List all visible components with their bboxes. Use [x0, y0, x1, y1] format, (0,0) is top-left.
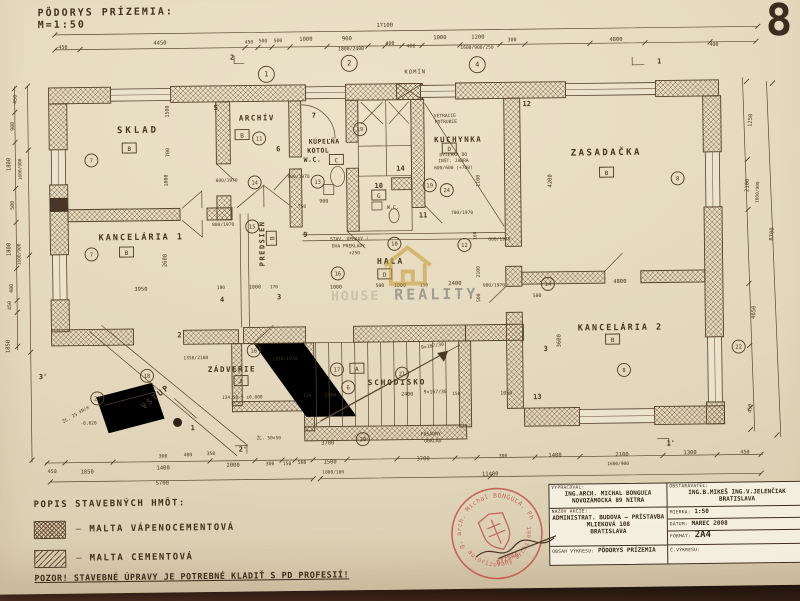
plan-text: 450 — [245, 39, 254, 45]
position-mark-8: 8 — [671, 172, 684, 185]
stamp-arc-bottom-text: autorizovaný architekt — [465, 524, 543, 580]
room-type-box-B: B — [122, 143, 136, 153]
room-type-box-G: G — [372, 190, 386, 200]
plan-text: 100 — [217, 285, 225, 291]
plan-text: B — [611, 337, 615, 344]
wall-mark: 5 — [214, 104, 218, 112]
legend-item-label: MALTA VÁPENOCEMENTOVÁ — [89, 523, 234, 535]
plan-text: 3700 — [416, 456, 429, 462]
plan-text: 1050 — [500, 390, 512, 396]
plan-text: 7 — [90, 252, 93, 258]
warning-note: POZOR! STAVEBNÉ ÚPRAVY JE POTREBNÉ KLADI… — [34, 570, 349, 584]
wall-mark: 11 — [419, 211, 428, 219]
plan-text: 2000 — [226, 463, 239, 469]
plan-text: A — [355, 366, 359, 373]
room-label-k-pe-a: KÚPEĽŇA — [309, 136, 340, 145]
plan-text: 500 — [274, 38, 283, 44]
position-mark-24: 24 — [440, 184, 453, 197]
room-label-zasada-ka: ZASADAČKA — [571, 146, 642, 159]
plan-text: 24 — [443, 188, 450, 194]
plan-text: 300 — [507, 37, 516, 43]
plan-text: 150 — [303, 393, 311, 399]
plan-text: 500 — [376, 283, 385, 289]
plan-text: 1850 — [81, 469, 94, 475]
plan-text: 1350/2100 — [183, 355, 208, 361]
plan-text: 4650 — [751, 306, 758, 319]
plan-text: 1400 — [156, 466, 169, 472]
plan-text: +250 — [349, 250, 360, 256]
plan-text: 800/1970 — [488, 236, 510, 242]
plan-text: 3700 — [321, 441, 334, 447]
plan-text: 1000 — [330, 284, 342, 290]
plan-text: C — [335, 157, 339, 164]
tb-cislo-vykresu: Č.VÝKRESU: — [668, 544, 800, 564]
plan-text: STAV. ÚPRAVY ! — [330, 235, 369, 242]
room-label-kancel-ria-1: KANCELÁRIA 1 — [99, 230, 185, 243]
plan-text: 1000 — [394, 283, 406, 289]
wall-mark: 9 — [303, 231, 307, 239]
plan-text: 16 — [250, 348, 257, 354]
plan-text: 4800 — [609, 37, 622, 43]
plan-text: 450 — [13, 95, 19, 104]
plan-text: 1500 — [165, 105, 171, 117]
plan-text: 8 — [622, 368, 625, 374]
plan-text: 14 — [545, 282, 552, 288]
plan-text: 2100 — [744, 179, 751, 192]
hatch-swatch-diagonal — [34, 550, 66, 568]
room-label-arch-v: ARCHÍV — [239, 113, 275, 122]
plan-text: 2100 — [476, 266, 482, 278]
plan-text: 500 — [259, 38, 268, 44]
plan-text: 1350/1970 — [272, 356, 297, 362]
room-label-kuchynka: KUCHYNKA — [434, 135, 482, 145]
svg-text:autorizovaný architekt: autorizovaný architekt — [465, 524, 543, 580]
materials-legend: POPIS STAVEBNÝCH HMÔT: — MALTA VÁPENOCEM… — [34, 496, 395, 568]
plan-text: 1300 — [683, 450, 696, 456]
plan-text: 23 — [94, 396, 101, 402]
plan-text: 4800 — [613, 279, 626, 285]
position-mark-22: 22 — [732, 340, 745, 353]
plan-text: A — [239, 379, 243, 386]
plan-text: 800/1970 — [212, 222, 234, 228]
room-type-box-B: B — [119, 247, 133, 257]
plan-text: 11400 — [482, 472, 499, 478]
plan-text: 1100 — [476, 175, 482, 187]
plan-text: 400 — [184, 452, 193, 458]
room-label-z-dverie: ZÁDVERIE — [208, 364, 256, 374]
position-mark-13: 13 — [311, 175, 324, 188]
plan-text: 500 — [533, 293, 542, 299]
plan-text: 16 — [334, 271, 341, 277]
room-type-box-B: B — [599, 167, 613, 177]
plan-text: 150 — [420, 282, 428, 288]
drawing-paper: PÔDORYS PRÍZEMIA: M=1:50 8 — [0, 0, 800, 595]
plan-text: DVIERKA DO — [439, 152, 467, 158]
room-label-kancel-ria-2: KANCELÁRIA 2 — [578, 320, 664, 333]
wall-mark: 4 — [220, 296, 224, 304]
legend-dash: — — [76, 554, 82, 564]
plan-text: 900 — [342, 36, 352, 42]
plan-text: 2600 — [163, 254, 169, 267]
hatch-swatch-crosshatch — [34, 521, 66, 539]
position-mark-14: 14 — [248, 176, 261, 189]
plan-text: 400 — [385, 41, 394, 47]
plan-text: 150 — [283, 461, 292, 467]
plan-text: 2400 — [401, 392, 413, 398]
wall-mark: 12 — [522, 100, 531, 108]
plan-text: 15 — [249, 224, 256, 230]
plan-text: 1250 — [748, 114, 755, 127]
plan-text: 3950 — [134, 287, 147, 293]
room-label-hala: HALA — [377, 257, 404, 266]
plan-text: D — [383, 272, 387, 279]
plan-text: 20 — [359, 437, 366, 443]
plan-text: 750 — [298, 204, 307, 210]
tb-obstaravatel: OBSTARÁVATEĽ: ING.B.MIKEŠ ING.V.JELENČIA… — [667, 482, 800, 508]
plan-text: 2400 — [448, 281, 461, 287]
plan-text: -0,020 — [80, 420, 97, 426]
wall-mark: 7 — [312, 112, 316, 120]
wall-mark: 1' — [667, 439, 676, 447]
plan-text: 12 — [461, 243, 468, 249]
position-mark-12: 12 — [458, 238, 471, 251]
position-mark-10: 10 — [388, 237, 401, 250]
plan-text: 1000 — [299, 37, 312, 43]
plan-text: 600/600 (+700) — [434, 165, 473, 171]
plan-text: D — [447, 146, 451, 153]
plan-text: 1850 — [6, 340, 12, 353]
plan-text: ŽĽ. 50×50 — [257, 433, 282, 441]
position-mark-1: 1 — [258, 66, 274, 82]
plan-text: 1800 — [6, 243, 12, 256]
plan-text: 900 — [10, 122, 16, 131]
plan-text: 500 — [10, 201, 16, 210]
plan-text: 8 — [676, 176, 679, 182]
plan-text: 600/1970 — [216, 178, 238, 184]
position-mark-16: 16 — [247, 344, 260, 357]
plan-text: 8700 — [769, 227, 776, 240]
wall-mark: 2' — [239, 446, 248, 454]
tb-obsah-vykresu: OBSAH VÝKRESU: PÔDORYS PRÍZEMIA — [550, 545, 667, 564]
legend-item: — MALTA VÁPENOCEMENTOVÁ — [34, 517, 394, 539]
plan-text: 1600/900 — [17, 158, 23, 180]
wall-mark: 3 — [277, 293, 281, 301]
position-mark-2: 2 — [341, 55, 357, 71]
plan-text: B — [269, 236, 276, 240]
plan-text: 3600 — [557, 334, 563, 347]
position-mark-15: 15 — [246, 220, 259, 233]
photo-of-floor-plan: { "header": {"title": "PÔDORYS PRÍZEMIA:… — [0, 0, 800, 600]
plan-text: 1000 — [249, 284, 261, 290]
tb-vypracoval: VYPRACOVAL: ING.ARCH. MICHAL BONGUĽA NOV… — [549, 483, 666, 508]
plan-text: 1800/2400 — [338, 46, 364, 52]
position-mark-4: 4 — [469, 57, 485, 73]
position-mark-8: 8 — [617, 363, 630, 376]
plan-text: 170 — [270, 284, 278, 290]
plan-text: 22 — [735, 345, 742, 351]
plan-text: 13 — [314, 180, 321, 186]
position-mark-6: 6 — [342, 381, 355, 394]
plan-text: B — [127, 146, 131, 153]
plan-text: OBKLAD — [424, 438, 442, 444]
plan-text: 400 — [406, 43, 415, 49]
room-type-box-A: A — [350, 363, 364, 373]
plan-text: 7 — [90, 158, 93, 164]
grid-marks: 124 — [258, 54, 485, 83]
plan-text: B — [125, 250, 129, 257]
plan-text: 4450 — [153, 41, 166, 47]
plan-text: 500 — [298, 460, 307, 466]
tb-nazov-akcie: NÁZOV AKCIE: ADMINISTRAT. BUDOVA – PRÍST… — [550, 507, 667, 546]
plan-text: 800/1970 — [287, 174, 309, 180]
plan-text: 500 — [476, 293, 482, 302]
room-type-box-D: D — [442, 143, 456, 153]
plan-text: 450 — [740, 449, 749, 455]
plan-text: 900/1970 — [483, 282, 505, 288]
plan-text: 1600/900 — [607, 461, 629, 467]
wall-mark: 2 — [230, 54, 234, 62]
legend-title: POPIS STAVEBNÝCH HMÔT: — [34, 496, 394, 510]
wall-mark: 10 — [374, 182, 383, 190]
plan-text: DVA PREKLADY — [332, 243, 365, 249]
plan-text: 300 — [266, 461, 275, 467]
legend-item: — MALTA CEMENTOVÁ — [34, 546, 394, 568]
plan-text: POTRUBIE — [435, 119, 457, 125]
plan-text: 400 — [9, 284, 15, 293]
plan-text: 1500 — [323, 459, 336, 465]
plan-text: 1200 — [471, 35, 484, 41]
plan-text: 9×167/30 — [424, 389, 447, 395]
wall-mark: 14 — [396, 165, 405, 173]
plan-text: B — [240, 133, 244, 140]
plan-text: 14 — [251, 180, 258, 186]
wall-mark: 1 — [657, 57, 661, 65]
plan-text: 1600/900 — [754, 181, 761, 203]
plan-text: 450 — [58, 45, 67, 51]
plan-text: 450 — [747, 404, 753, 413]
plan-text: 300 — [499, 453, 508, 459]
plan-text: 1800/100 — [322, 469, 344, 475]
wall-mark: 1 — [190, 424, 194, 432]
plan-text: 1800 — [324, 392, 336, 398]
plan-text: 400 — [709, 42, 718, 48]
room-type-box-C: C — [329, 154, 343, 164]
plan-text: 1000 — [164, 174, 170, 186]
plan-text: 700 — [165, 148, 171, 157]
plan-text: 300 — [159, 454, 168, 460]
room-label-w-c-: W.C. — [304, 156, 322, 164]
title-block: VYPRACOVAL: ING.ARCH. MICHAL BONGUĽA NOV… — [548, 481, 800, 566]
plan-text: 160 — [472, 231, 478, 239]
position-mark-17: 17 — [330, 363, 343, 376]
plan-text: 350 — [207, 451, 216, 457]
solid-wall-block — [50, 198, 68, 212]
legend-item-label: MALTA CEMENTOVÁ — [90, 552, 194, 563]
room-type-box-D: D — [378, 269, 392, 279]
wall-mark: 13 — [533, 393, 542, 401]
plan-text: 5700 — [156, 481, 169, 487]
wall-mark: 6 — [276, 145, 280, 153]
plan-text: W.C. — [387, 205, 399, 211]
wall-mark: 3 — [544, 345, 548, 353]
plan-text: 450 — [48, 469, 57, 475]
plan-text: 11 — [256, 136, 263, 142]
plan-text: 6 — [346, 385, 349, 391]
room-label-sklad: SKLAD — [117, 126, 159, 137]
plan-text: 17 — [334, 367, 341, 373]
room-label-schodisko: SCHODISKO — [368, 377, 427, 387]
plan-text: 2 — [347, 59, 351, 67]
plan-text: 19 — [357, 127, 364, 133]
position-mark-7: 7 — [85, 154, 98, 167]
room-label-kotol: KOTOL — [307, 147, 329, 155]
plan-text: 19 — [426, 183, 433, 189]
plan-text: 150 — [452, 391, 460, 397]
position-mark-16: 16 — [331, 267, 344, 280]
room-type-box-B: B — [606, 334, 620, 344]
plan-text: 1 — [264, 70, 268, 78]
room-type-box-B: B — [266, 231, 276, 245]
plan-text: 1600/900 — [16, 243, 22, 265]
window-midlines — [58, 88, 716, 423]
plan-text: 700/1970 — [451, 210, 473, 216]
wall-mark: 2 — [177, 331, 181, 339]
room-type-box-B: B — [235, 130, 249, 140]
architect-stamp: Ing. arch. Michal BONGUĽA, PhD. autorizo… — [437, 478, 558, 591]
plan-text: KOMÍN — [404, 67, 426, 75]
entrance-dot — [173, 418, 182, 427]
plan-text: 1400 — [548, 453, 561, 459]
drawing-content: PÔDORYS PRÍZEMIA: M=1:50 8 — [0, 0, 800, 601]
plan-text: 1800 — [6, 158, 12, 171]
plan-text: 18 — [144, 374, 151, 380]
floor-plan: SKLADKANCELÁRIA 1ARCHÍVPREDSIEŇKÚPEĽŇAKO… — [0, 0, 800, 493]
plan-text: 450 — [7, 301, 13, 310]
plan-text: 4 — [475, 61, 479, 69]
plan-text: 17100 — [376, 23, 393, 29]
legend-dash: — — [76, 525, 82, 535]
position-mark-11: 11 — [253, 132, 266, 145]
plan-text: 21 — [399, 372, 406, 378]
plan-text: 10 — [391, 242, 398, 248]
plan-text: 134,58 = ±0,000 — [222, 394, 263, 400]
wall-mark: 3' — [39, 373, 48, 381]
plan-text: 1000 — [433, 35, 446, 41]
plan-text: B — [605, 170, 609, 177]
plan-text: 900 — [319, 199, 328, 205]
plan-text: 2100 — [615, 452, 628, 458]
position-mark-7: 7 — [85, 248, 98, 261]
plan-text: G — [377, 193, 381, 200]
plan-text: 1600/900/250 — [460, 45, 493, 51]
plan-text: 4200 — [548, 174, 554, 187]
plan-text: VETRACIE — [434, 113, 456, 119]
